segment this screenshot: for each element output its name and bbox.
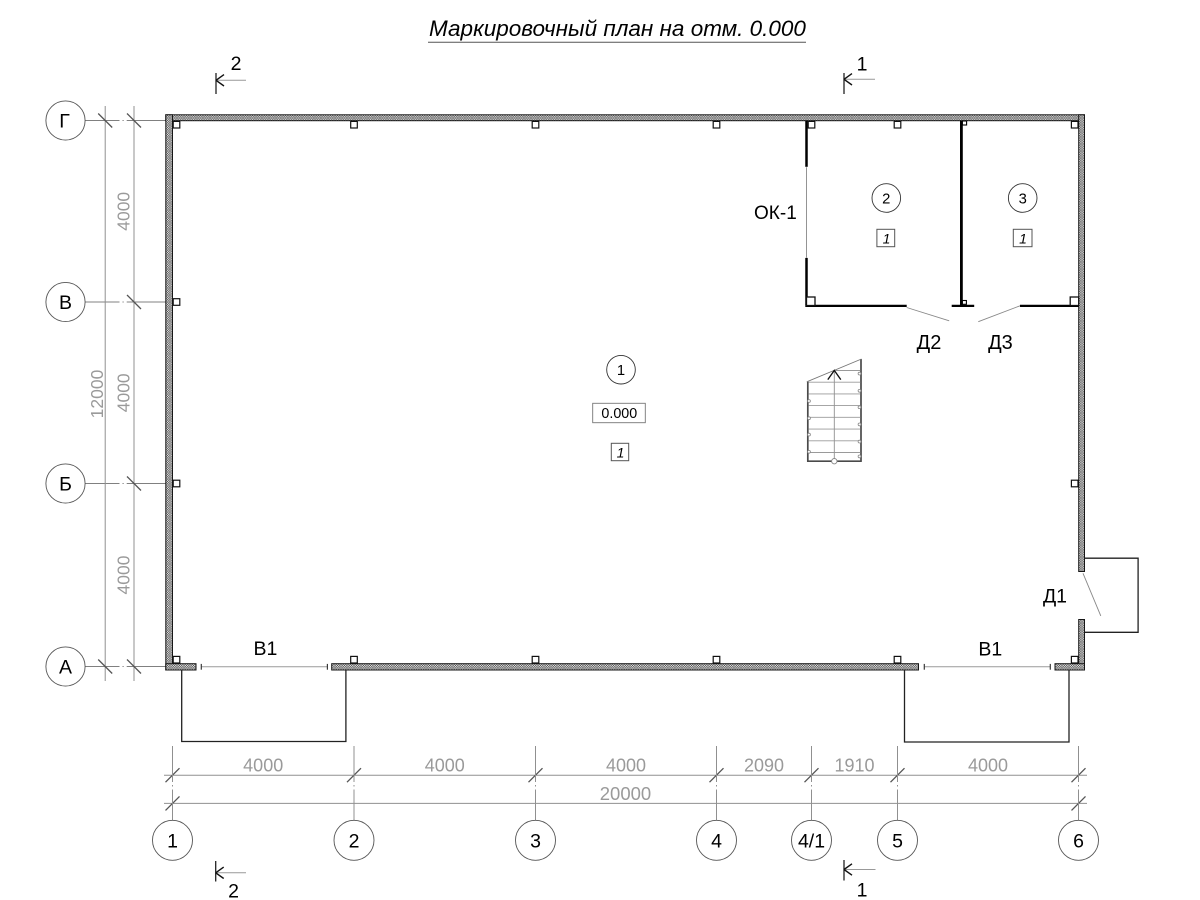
- svg-text:В1: В1: [978, 639, 1002, 661]
- svg-text:4: 4: [711, 830, 722, 852]
- svg-text:4000: 4000: [114, 192, 134, 231]
- svg-text:5: 5: [892, 830, 903, 852]
- svg-text:3: 3: [530, 830, 541, 852]
- svg-text:3: 3: [1019, 191, 1027, 207]
- svg-text:ОК-1: ОК-1: [754, 203, 797, 224]
- svg-text:Г: Г: [59, 110, 70, 132]
- svg-text:1: 1: [883, 231, 891, 247]
- svg-text:1: 1: [617, 445, 625, 461]
- svg-text:Д2: Д2: [917, 332, 942, 354]
- svg-text:Б: Б: [59, 473, 72, 495]
- svg-text:1: 1: [1019, 231, 1027, 247]
- svg-text:2: 2: [231, 53, 242, 75]
- svg-text:4/1: 4/1: [798, 830, 825, 852]
- svg-text:4000: 4000: [606, 755, 646, 775]
- svg-text:4000: 4000: [243, 755, 283, 775]
- svg-text:20000: 20000: [600, 783, 651, 804]
- svg-text:4000: 4000: [968, 755, 1008, 775]
- svg-text:2: 2: [228, 881, 239, 900]
- svg-text:А: А: [59, 656, 72, 678]
- svg-text:Д1: Д1: [1043, 586, 1067, 608]
- svg-text:В: В: [59, 292, 72, 314]
- svg-text:1: 1: [617, 363, 625, 379]
- svg-text:1: 1: [167, 830, 178, 852]
- svg-text:12000: 12000: [87, 369, 107, 418]
- svg-text:2090: 2090: [744, 755, 784, 775]
- svg-text:В1: В1: [253, 638, 277, 660]
- svg-text:4000: 4000: [425, 755, 465, 775]
- svg-text:4000: 4000: [114, 373, 134, 412]
- svg-text:2: 2: [882, 191, 890, 207]
- svg-text:1: 1: [857, 54, 868, 76]
- svg-text:6: 6: [1073, 830, 1084, 852]
- svg-text:Д3: Д3: [988, 332, 1013, 354]
- svg-text:1910: 1910: [834, 755, 874, 775]
- svg-text:Маркировочный план на отм. 0.0: Маркировочный план на отм. 0.000: [429, 16, 806, 41]
- svg-text:0.000: 0.000: [601, 406, 637, 422]
- svg-text:1: 1: [857, 880, 868, 900]
- svg-text:4000: 4000: [114, 555, 134, 594]
- svg-text:2: 2: [349, 830, 360, 852]
